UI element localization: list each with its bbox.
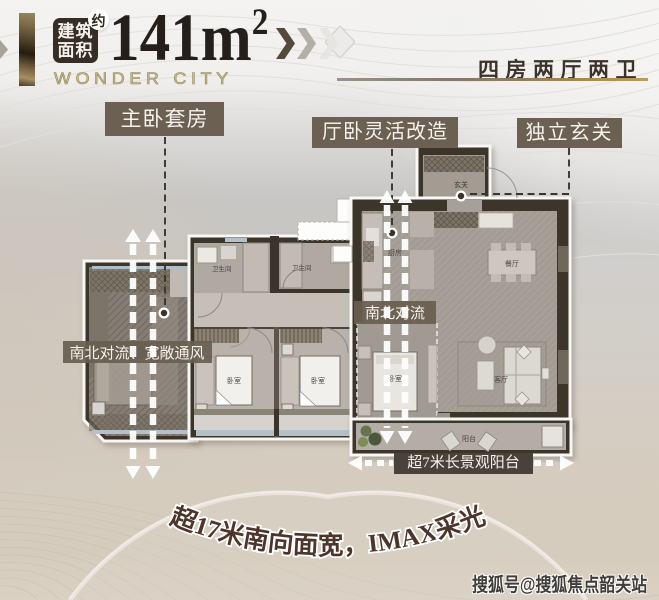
svg-text:超17米南向面宽，IMAX采光: 超17米南向面宽，IMAX采光 [167,501,489,560]
